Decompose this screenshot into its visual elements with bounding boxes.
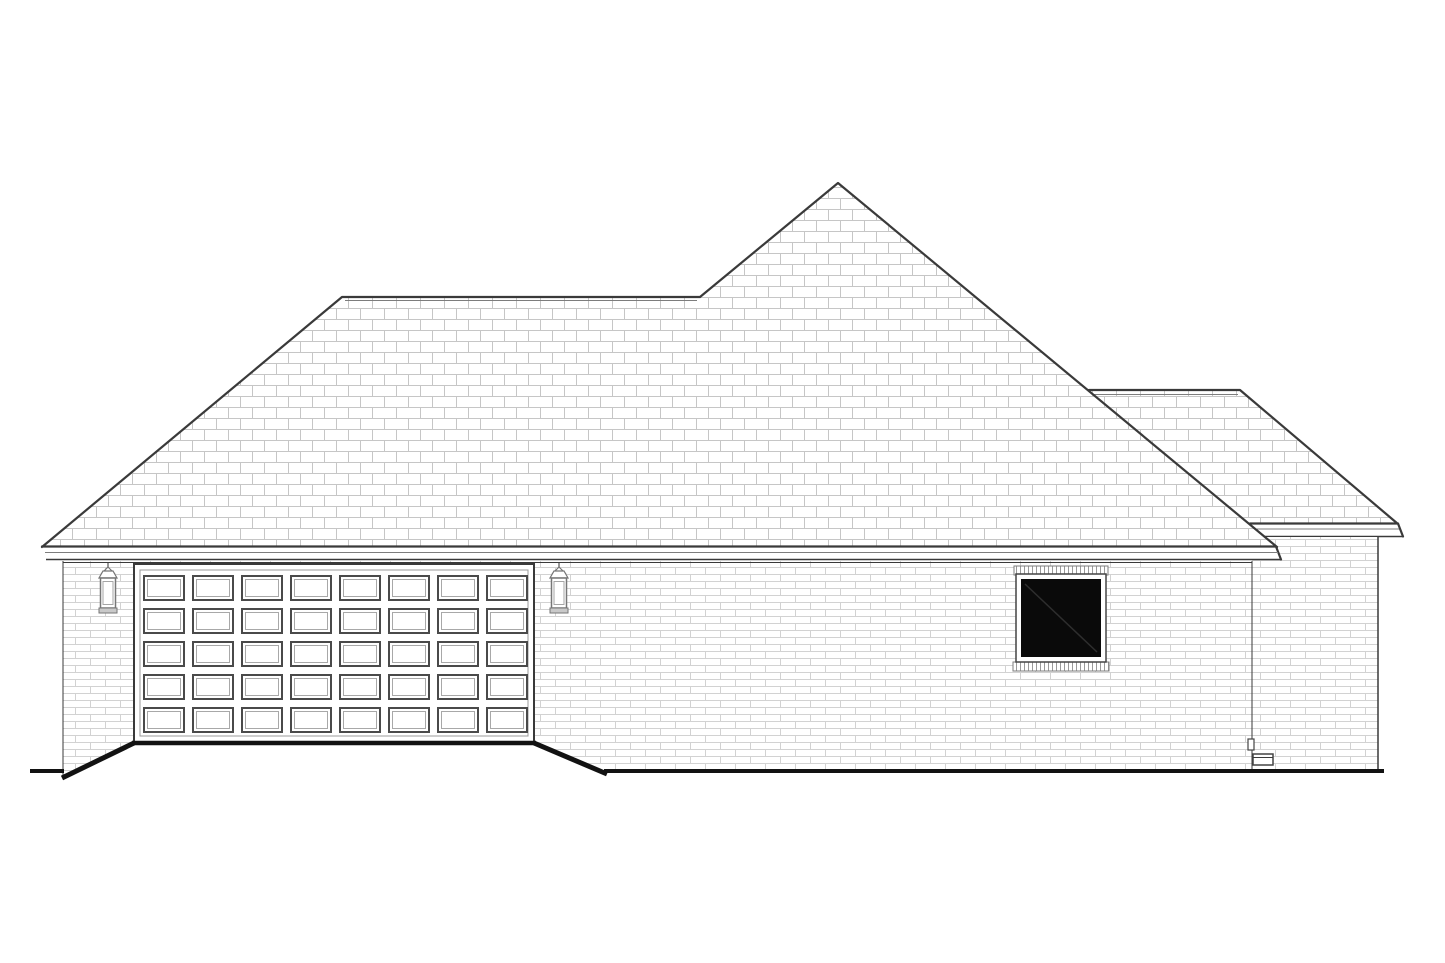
vent-box [1253, 754, 1273, 765]
rear-wing-fascia [1250, 523, 1403, 537]
main-roof-face [42, 183, 1277, 547]
meter-box [1248, 739, 1254, 750]
rear-wing-wall [1252, 537, 1378, 770]
main-roof [42, 183, 1277, 547]
elevation-drawing [0, 0, 1445, 963]
main-fascia [42, 546, 1281, 560]
garage-door [134, 564, 534, 742]
window-sill [1013, 662, 1109, 671]
elevation-page [0, 0, 1445, 963]
window [1013, 566, 1109, 671]
